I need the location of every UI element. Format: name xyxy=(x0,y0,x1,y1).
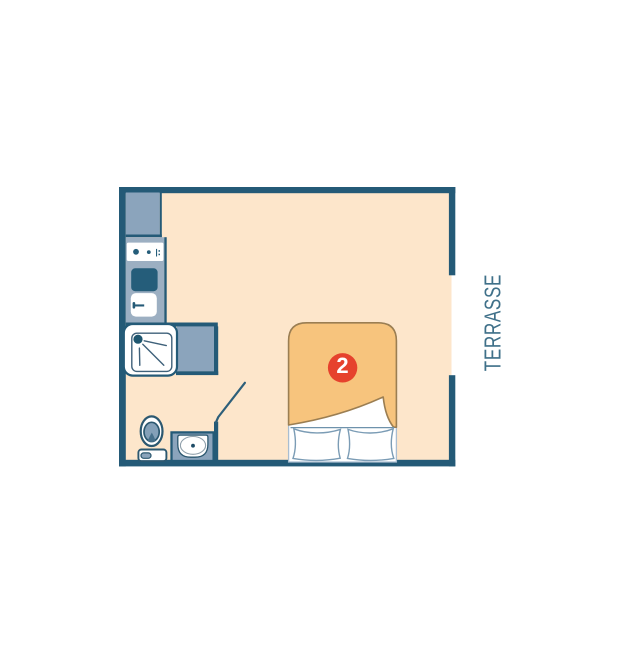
svg-text:2: 2 xyxy=(336,353,348,378)
svg-text:TERRASSE: TERRASSE xyxy=(480,274,506,371)
